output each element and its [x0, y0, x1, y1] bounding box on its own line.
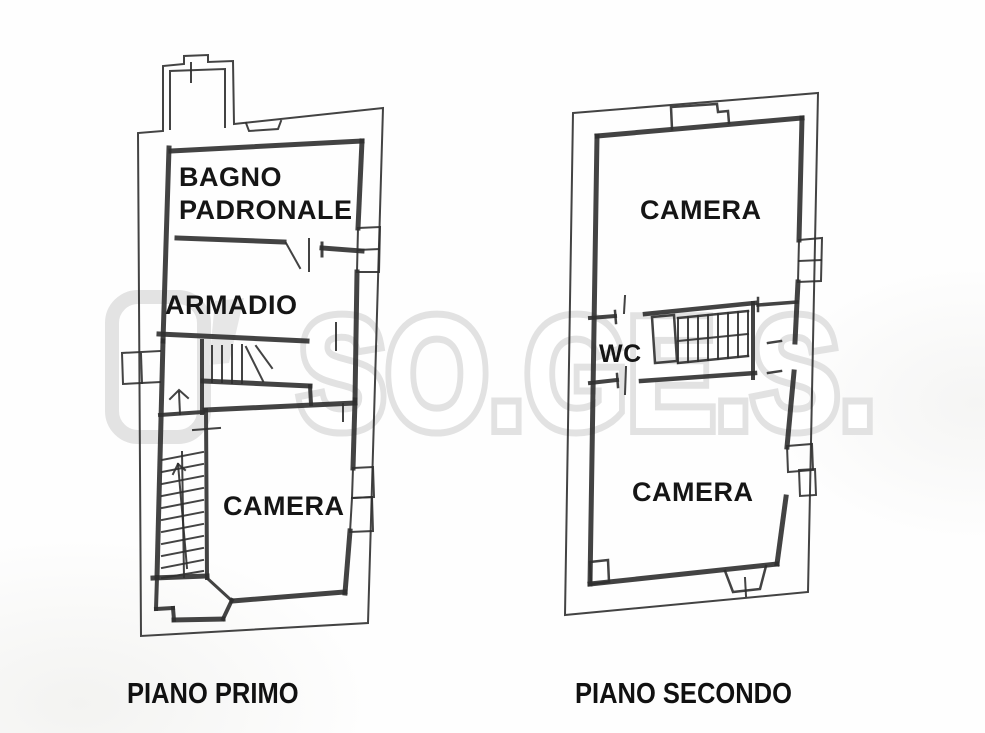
inner-right-wall-seg1	[799, 118, 802, 240]
camera-left-wall	[206, 410, 207, 578]
room-label-camera-secondo-bottom: CAMERA	[632, 476, 754, 509]
right-window-bay-upper-mullion	[358, 249, 379, 250]
right-window-bay-lower-b	[350, 497, 373, 532]
room-label-line: PADRONALE	[179, 194, 353, 227]
inner-left-wall	[590, 136, 597, 584]
bottom-left-step-2	[156, 608, 173, 609]
floorplan-canvas: SO.GE.S.	[0, 0, 985, 733]
stair-step-wall	[310, 386, 311, 404]
bottom-bay-wall	[174, 619, 223, 620]
right-window-bay-lower-b	[799, 469, 816, 496]
bottom-left-step-1	[156, 577, 157, 609]
lower-stair-tread	[162, 548, 203, 556]
right-wall-seg1	[358, 141, 362, 228]
inner-bottom-wall	[590, 564, 777, 584]
wc-stub-lower-tick	[617, 374, 618, 387]
shaft-partition	[160, 412, 203, 415]
wc-stub-upper	[590, 316, 615, 318]
inner-top-wall	[597, 118, 802, 136]
inner-right-wall-seg4	[777, 497, 786, 564]
inner-right-wall-seg2	[795, 282, 798, 342]
right-wall-seg4	[345, 531, 350, 593]
wc-stub-upper-tick	[615, 311, 616, 323]
left-window-bay-mullion	[141, 354, 142, 383]
room-label-armadio: ARMADIO	[165, 289, 298, 322]
wc-door-dash-upper	[624, 296, 625, 313]
bagno-bottom-wall	[177, 238, 284, 242]
floorplan-svg: SO.GE.S.	[0, 0, 985, 733]
armadio-bottom-wall	[159, 334, 307, 341]
tower-inner-wall	[170, 69, 225, 129]
room-label-line: BAGNO	[179, 161, 353, 194]
wc-door-dash-lower	[625, 367, 626, 394]
room-label-camera-secondo-top: CAMERA	[640, 194, 762, 227]
caption-piano-primo: PIANO PRIMO	[127, 678, 299, 711]
lower-stair-tread	[162, 560, 203, 568]
upper-stair-diagonal	[256, 346, 272, 368]
room-label-camera-primo: CAMERA	[223, 490, 345, 523]
upper-arrow-stem	[179, 392, 180, 414]
right-wall-seg2	[355, 272, 357, 400]
bagno-door-leaf	[286, 243, 300, 268]
camera-bottom-wall	[232, 592, 345, 601]
upper-stair-bottom-wall	[203, 381, 310, 386]
bagno-bottom-wall-right	[322, 248, 362, 251]
room-label-bagno-padronale: BAGNO PADRONALE	[179, 161, 353, 227]
right-window-bay-upper-mullion	[799, 260, 821, 261]
right-wall-seg3	[353, 400, 355, 468]
right-window-bay-lower-a	[352, 467, 374, 498]
bottom-center-notch-tick	[745, 578, 746, 596]
bagno-top-wall	[171, 141, 362, 151]
room-label-wc: WC	[599, 338, 642, 371]
camera-corner-chamfer	[207, 578, 231, 600]
caption-piano-secondo: PIANO SECONDO	[575, 678, 792, 711]
